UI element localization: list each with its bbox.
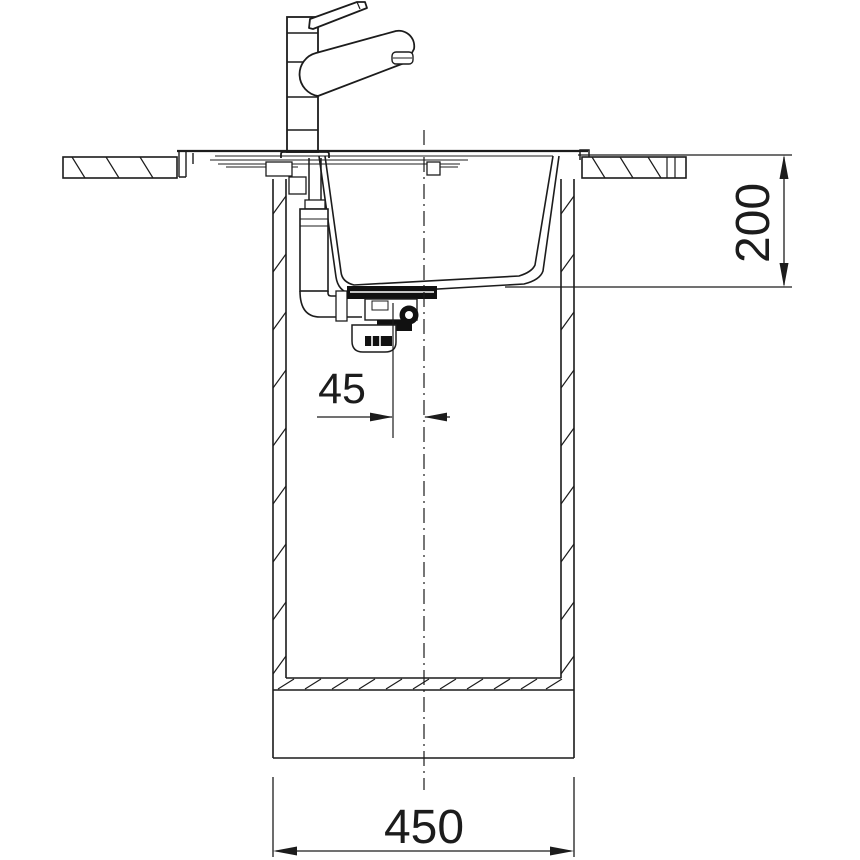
sink-technical-drawing-page: 200 45 450 — [0, 0, 860, 860]
drain-bracket-strip — [365, 336, 392, 346]
dim45-arrow-left — [424, 413, 447, 422]
drain-knob-inner — [405, 311, 413, 319]
countertop-left-section — [63, 157, 177, 178]
inset-sink — [177, 150, 589, 294]
dimension-drain-offset: 45 — [317, 365, 450, 421]
sink-rim-left-flange — [179, 151, 193, 177]
overflow-neck — [309, 158, 321, 203]
mixer-tap — [281, 2, 414, 158]
dim450-label: 450 — [384, 801, 464, 854]
drain-trap-detail — [372, 301, 388, 310]
sink-fixing-clip-mid — [427, 162, 440, 175]
dim200-arrow-up — [780, 155, 789, 179]
overflow-mounting-bracket — [289, 177, 306, 194]
dim45-arrow-right — [370, 413, 393, 422]
dim450-arrow-left — [273, 847, 297, 856]
cabinet-bottom-panel-hatching — [278, 679, 562, 689]
countertop-right-section — [582, 157, 686, 178]
overflow-pipe-flange — [336, 291, 347, 321]
overflow-cylinder — [300, 209, 328, 291]
dim200-arrow-down — [780, 263, 789, 287]
technical-drawing-svg: 200 45 450 — [0, 0, 860, 860]
dim45-label: 45 — [318, 365, 366, 413]
dim450-arrow-right — [550, 847, 574, 856]
sink-fixing-clip-left — [266, 162, 292, 176]
drain-trap-assembly — [347, 286, 437, 438]
sink-bowl-outer-wall — [319, 156, 559, 294]
dim200-label: 200 — [727, 183, 780, 263]
overflow-cap-ring — [305, 200, 325, 209]
